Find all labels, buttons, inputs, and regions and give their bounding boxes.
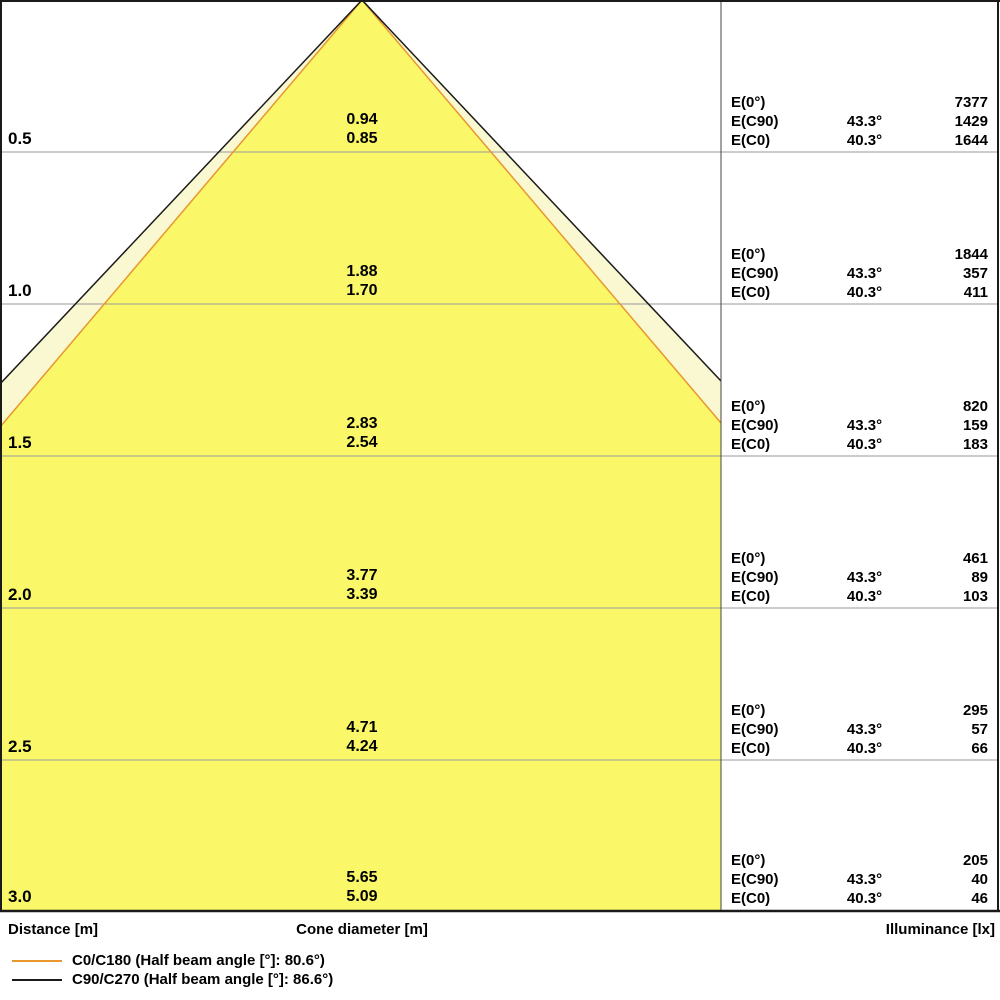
ec0-angle: 40.3° xyxy=(811,283,918,302)
cone-diameter-c90: 3.77 xyxy=(282,566,442,585)
ec90-row: E(C90) 43.3° 40 xyxy=(731,870,988,889)
e0-label: E(0°) xyxy=(731,397,811,416)
ec0-row: E(C0) 40.3° 46 xyxy=(731,889,988,908)
distance-label: 0.5 xyxy=(8,128,32,150)
cone-diameter-c0: 5.09 xyxy=(282,887,442,906)
illuminance-block: E(0°) 1844 E(C90) 43.3° 357 E(C0) 40.3° … xyxy=(731,245,988,302)
e0-value: 1844 xyxy=(918,245,988,264)
cone-diameter-c0: 2.54 xyxy=(282,433,442,452)
e0-angle xyxy=(811,851,918,870)
ec0-value: 183 xyxy=(918,435,988,454)
cone-diameter-c90: 4.71 xyxy=(282,718,442,737)
ec0-label: E(C0) xyxy=(731,435,811,454)
e0-row: E(0°) 7377 xyxy=(731,93,988,112)
ec0-row: E(C0) 40.3° 183 xyxy=(731,435,988,454)
ec0-value: 1644 xyxy=(918,131,988,150)
e0-value: 205 xyxy=(918,851,988,870)
ec0-label: E(C0) xyxy=(731,739,811,758)
distance-label: 1.5 xyxy=(8,432,32,454)
cone-diameter-c0: 0.85 xyxy=(282,129,442,148)
ec90-angle: 43.3° xyxy=(811,416,918,435)
ec90-row: E(C90) 43.3° 159 xyxy=(731,416,988,435)
ec0-angle: 40.3° xyxy=(811,435,918,454)
legend-item-c0-c180: C0/C180 (Half beam angle [°]: 80.6°) xyxy=(12,951,333,970)
distance-label: 2.0 xyxy=(8,584,32,606)
legend-label: C0/C180 (Half beam angle [°]: 80.6°) xyxy=(72,952,325,969)
e0-value: 7377 xyxy=(918,93,988,112)
ec90-angle: 43.3° xyxy=(811,112,918,131)
ec0-row: E(C0) 40.3° 1644 xyxy=(731,131,988,150)
cone-diameter-c0: 4.24 xyxy=(282,737,442,756)
ec90-value: 57 xyxy=(918,720,988,739)
e0-row: E(0°) 461 xyxy=(731,549,988,568)
e0-value: 820 xyxy=(918,397,988,416)
ec90-label: E(C90) xyxy=(731,416,811,435)
ec90-angle: 43.3° xyxy=(811,720,918,739)
ec90-value: 1429 xyxy=(918,112,988,131)
cone-diameter-values: 3.77 3.39 xyxy=(282,566,442,604)
ec0-value: 46 xyxy=(918,889,988,908)
distance-axis-label: Distance [m] xyxy=(8,919,98,941)
legend: C0/C180 (Half beam angle [°]: 80.6°) C90… xyxy=(12,951,333,989)
ec90-value: 357 xyxy=(918,264,988,283)
c0-line-swatch-icon xyxy=(12,960,62,962)
ec0-label: E(C0) xyxy=(731,889,811,908)
e0-row: E(0°) 820 xyxy=(731,397,988,416)
ec0-row: E(C0) 40.3° 66 xyxy=(731,739,988,758)
illuminance-axis-label: Illuminance [lx] xyxy=(886,919,995,941)
illuminance-block: E(0°) 7377 E(C90) 43.3° 1429 E(C0) 40.3°… xyxy=(731,93,988,150)
ec0-angle: 40.3° xyxy=(811,889,918,908)
ec0-row: E(C0) 40.3° 103 xyxy=(731,587,988,606)
illuminance-block: E(0°) 205 E(C90) 43.3° 40 E(C0) 40.3° 46 xyxy=(731,851,988,908)
cone-diameter-c0: 3.39 xyxy=(282,585,442,604)
e0-label: E(0°) xyxy=(731,93,811,112)
ec90-label: E(C90) xyxy=(731,720,811,739)
e0-angle xyxy=(811,701,918,720)
cone-diameter-c90: 2.83 xyxy=(282,414,442,433)
ec90-value: 159 xyxy=(918,416,988,435)
ec90-angle: 43.3° xyxy=(811,568,918,587)
c90-line-swatch-icon xyxy=(12,979,62,981)
ec0-label: E(C0) xyxy=(731,587,811,606)
ec90-label: E(C90) xyxy=(731,112,811,131)
ec0-label: E(C0) xyxy=(731,283,811,302)
e0-angle xyxy=(811,549,918,568)
e0-label: E(0°) xyxy=(731,851,811,870)
e0-angle xyxy=(811,245,918,264)
e0-row: E(0°) 205 xyxy=(731,851,988,870)
cone-diameter-values: 0.94 0.85 xyxy=(282,110,442,148)
cone-diameter-values: 5.65 5.09 xyxy=(282,868,442,906)
cone-diameter-c90: 0.94 xyxy=(282,110,442,129)
e0-row: E(0°) 1844 xyxy=(731,245,988,264)
cone-diameter-values: 2.83 2.54 xyxy=(282,414,442,452)
ec0-row: E(C0) 40.3° 411 xyxy=(731,283,988,302)
e0-value: 461 xyxy=(918,549,988,568)
ec90-row: E(C90) 43.3° 89 xyxy=(731,568,988,587)
ec0-value: 66 xyxy=(918,739,988,758)
ec90-row: E(C90) 43.3° 1429 xyxy=(731,112,988,131)
e0-label: E(0°) xyxy=(731,245,811,264)
e0-value: 295 xyxy=(918,701,988,720)
ec90-row: E(C90) 43.3° 57 xyxy=(731,720,988,739)
ec90-label: E(C90) xyxy=(731,264,811,283)
ec90-label: E(C90) xyxy=(731,568,811,587)
cone-diameter-values: 4.71 4.24 xyxy=(282,718,442,756)
legend-item-c90-c270: C90/C270 (Half beam angle [°]: 86.6°) xyxy=(12,970,333,989)
ec90-angle: 43.3° xyxy=(811,264,918,283)
legend-label: C90/C270 (Half beam angle [°]: 86.6°) xyxy=(72,971,333,988)
ec90-value: 89 xyxy=(918,568,988,587)
e0-angle xyxy=(811,397,918,416)
illuminance-block: E(0°) 461 E(C90) 43.3° 89 E(C0) 40.3° 10… xyxy=(731,549,988,606)
ec0-value: 411 xyxy=(918,283,988,302)
e0-label: E(0°) xyxy=(731,701,811,720)
distance-label: 2.5 xyxy=(8,736,32,758)
illuminance-block: E(0°) 295 E(C90) 43.3° 57 E(C0) 40.3° 66 xyxy=(731,701,988,758)
e0-row: E(0°) 295 xyxy=(731,701,988,720)
cone-diameter-c90: 1.88 xyxy=(282,262,442,281)
ec0-value: 103 xyxy=(918,587,988,606)
e0-angle xyxy=(811,93,918,112)
distance-label: 1.0 xyxy=(8,280,32,302)
cone-diameter-axis-label: Cone diameter [m] xyxy=(262,919,462,941)
ec90-value: 40 xyxy=(918,870,988,889)
ec90-row: E(C90) 43.3° 357 xyxy=(731,264,988,283)
distance-label: 3.0 xyxy=(8,886,32,908)
ec90-angle: 43.3° xyxy=(811,870,918,889)
ec0-angle: 40.3° xyxy=(811,131,918,150)
ec90-label: E(C90) xyxy=(731,870,811,889)
cone-diameter-values: 1.88 1.70 xyxy=(282,262,442,300)
illuminance-block: E(0°) 820 E(C90) 43.3° 159 E(C0) 40.3° 1… xyxy=(731,397,988,454)
cone-diameter-c0: 1.70 xyxy=(282,281,442,300)
cone-diameter-c90: 5.65 xyxy=(282,868,442,887)
cone-diagram: 0.5 0.94 0.85 E(0°) 7377 E(C90) 43.3° 14… xyxy=(0,0,1000,1000)
ec0-angle: 40.3° xyxy=(811,587,918,606)
e0-label: E(0°) xyxy=(731,549,811,568)
ec0-label: E(C0) xyxy=(731,131,811,150)
ec0-angle: 40.3° xyxy=(811,739,918,758)
